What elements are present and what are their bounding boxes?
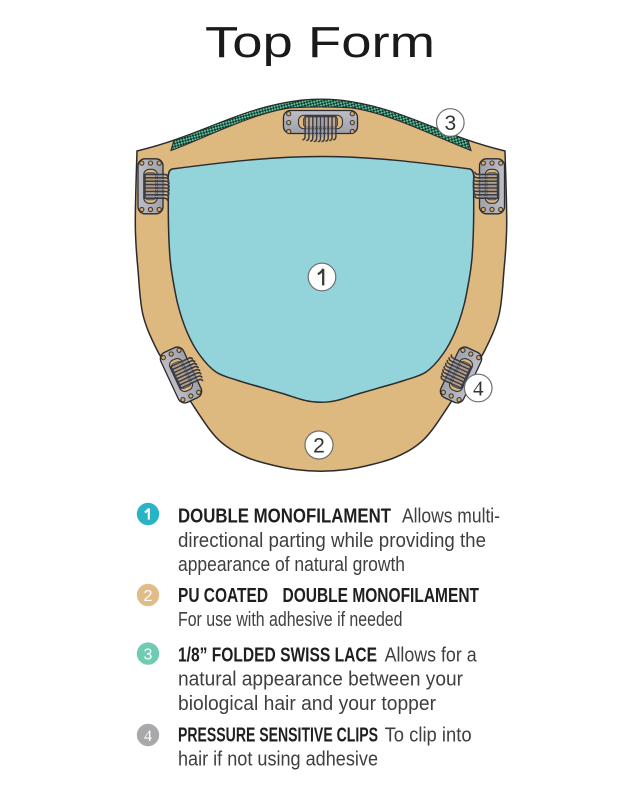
svg-text:DOUBLE MONOFILAMENT: DOUBLE MONOFILAMENT [283, 585, 480, 607]
svg-text:appearance of natural growth: appearance of natural growth [178, 554, 405, 576]
svg-text:Top Form: Top Form [205, 18, 435, 67]
svg-text:3: 3 [444, 112, 456, 135]
svg-text:directional parting while prov: directional parting while providing the [178, 530, 486, 552]
svg-text:natural appearance between you: natural appearance between your [178, 669, 463, 691]
svg-text:PU COATED: PU COATED [178, 585, 268, 607]
svg-text:Allows for a: Allows for a [385, 644, 478, 666]
svg-text:For use with adhesive if neede: For use with adhesive if needed [178, 609, 403, 631]
svg-text:To clip into: To clip into [385, 724, 472, 746]
svg-text:Allows multi-: Allows multi- [402, 505, 500, 527]
svg-text:4: 4 [473, 377, 484, 401]
svg-text:1/8” FOLDED SWISS LACE: 1/8” FOLDED SWISS LACE [178, 644, 377, 666]
svg-text:hair if not using adhesive: hair if not using adhesive [178, 749, 378, 771]
svg-text:3: 3 [144, 646, 153, 663]
svg-text:PRESSURE SENSITIVE CLIPS: PRESSURE SENSITIVE CLIPS [178, 724, 378, 746]
svg-text:2: 2 [144, 588, 153, 605]
svg-text:4: 4 [144, 728, 152, 745]
svg-text:biological hair and your toppe: biological hair and your topper [178, 693, 436, 715]
svg-text:2: 2 [313, 435, 325, 458]
svg-text:DOUBLE MONOFILAMENT: DOUBLE MONOFILAMENT [178, 505, 391, 527]
